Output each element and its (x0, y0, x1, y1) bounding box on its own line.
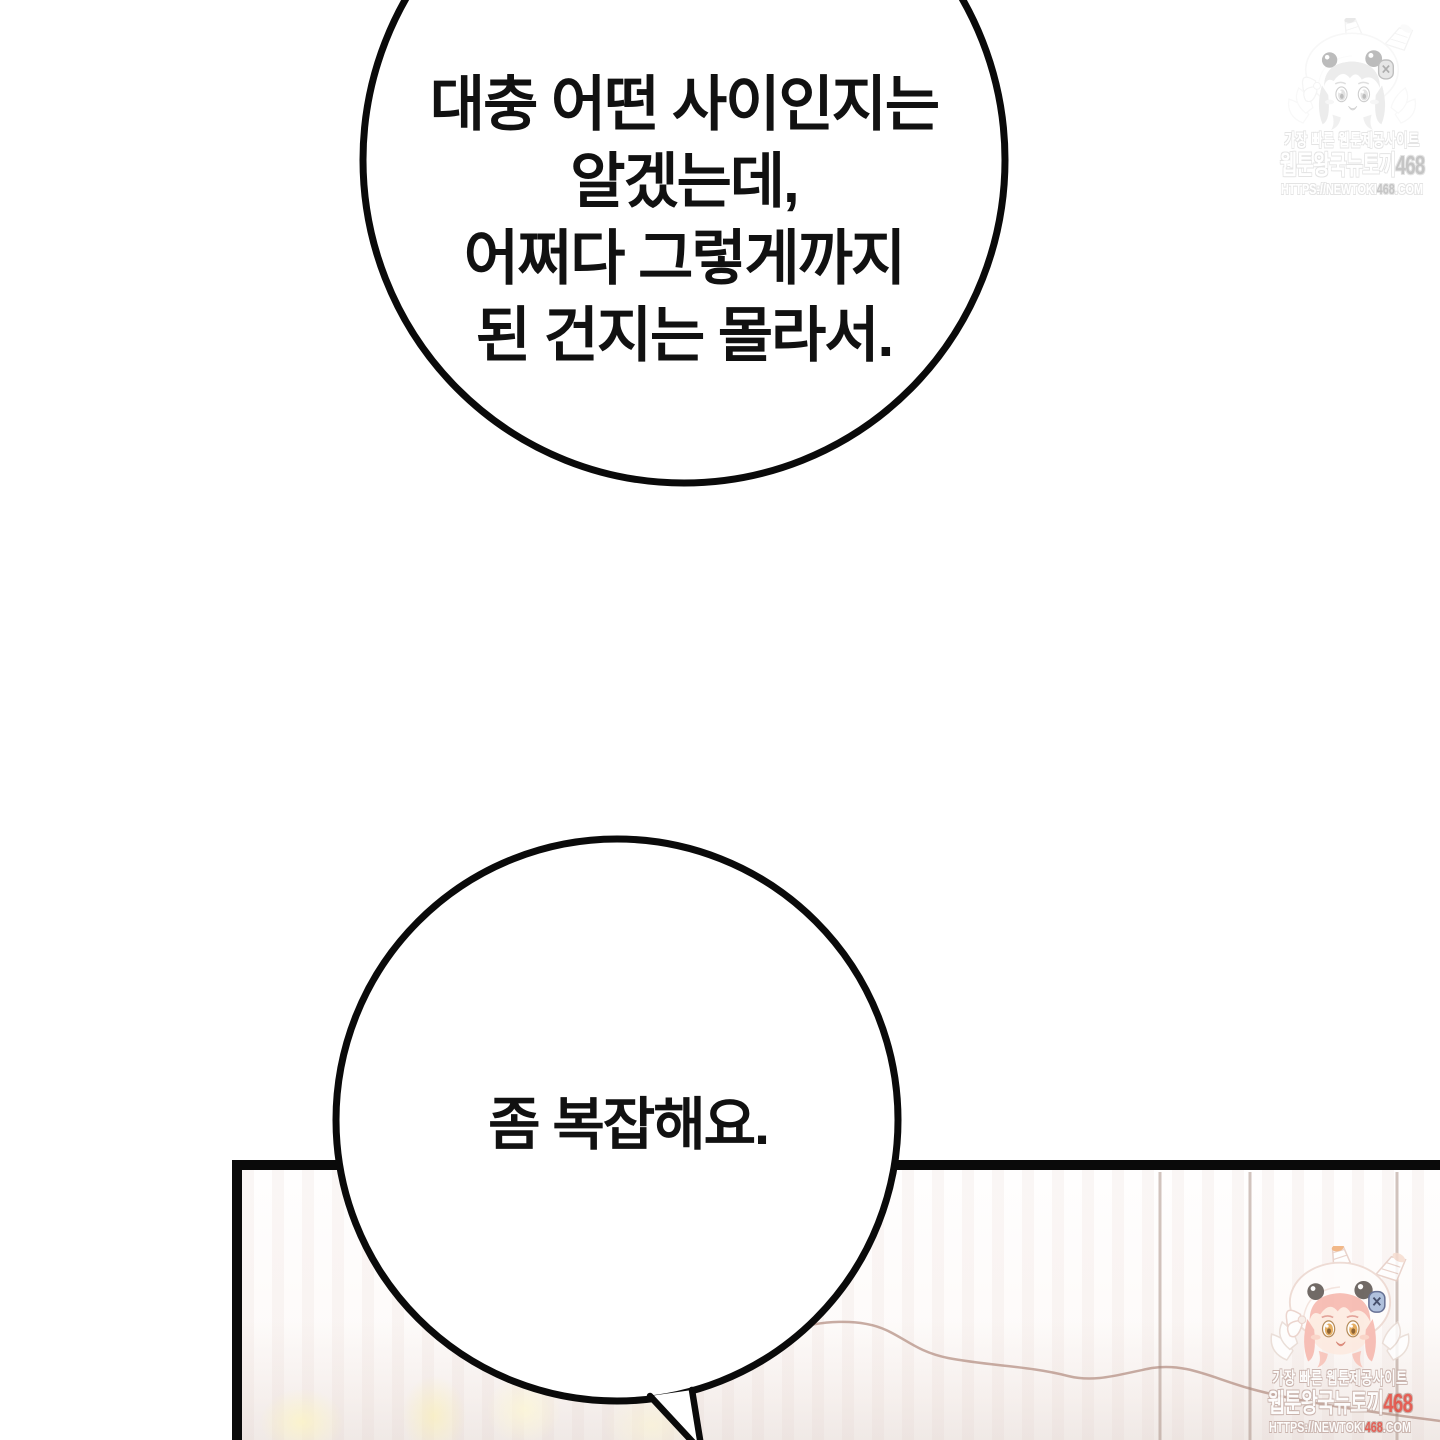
watermark-url: HTTPS://NEWTOKI468.COM (1267, 1419, 1414, 1436)
watermark-text: 가장 빠른 웹툰제공사이트 웹툰왕국뉴토끼468 HTTPS://NEWTOKI… (1238, 1364, 1440, 1436)
watermark-text: 가장 빠른 웹툰제공사이트 웹툰왕국뉴토끼468 HTTPS://NEWTOKI… (1252, 126, 1440, 198)
watermark-tagline: 가장 빠른 웹툰제공사이트 (1267, 1364, 1414, 1389)
dialogue-line: 알겠는데, (394, 143, 974, 220)
mascot-bunny-hood-girl-icon (1264, 1246, 1416, 1371)
watermark-site-name: 웹툰왕국뉴토끼468 (1267, 1389, 1414, 1419)
dialogue-bottom: 좀 복잡해요. (398, 1094, 858, 1156)
webtoon-page: 대충 어떤 사이인지는 알겠는데, 어쩌다 그렇게까지 된 건지는 몰라서. 좀… (0, 0, 1440, 1440)
dialogue-top: 대충 어떤 사이인지는 알겠는데, 어쩌다 그렇게까지 된 건지는 몰라서. (394, 66, 974, 374)
watermark-site-name: 웹툰왕국뉴토끼468 (1280, 151, 1424, 181)
watermark-top-right: 가장 빠른 웹툰제공사이트 웹툰왕국뉴토끼468 HTTPS://NEWTOKI… (1252, 6, 1440, 198)
watermark-url: HTTPS://NEWTOKI468.COM (1280, 181, 1424, 198)
speech-bubble-tail (650, 1390, 702, 1440)
dialogue-line: 어쩌다 그렇게까지 (394, 220, 974, 297)
dialogue-line: 된 건지는 몰라서. (394, 297, 974, 374)
watermark-bottom-right: 가장 빠른 웹툰제공사이트 웹툰왕국뉴토끼468 HTTPS://NEWTOKI… (1238, 1246, 1440, 1436)
dialogue-line: 대충 어떤 사이인지는 (394, 66, 974, 143)
mascot-bunny-hood-girl-icon (1282, 18, 1422, 133)
dialogue-line: 좀 복잡해요. (398, 1094, 858, 1156)
watermark-tagline: 가장 빠른 웹툰제공사이트 (1280, 126, 1424, 151)
